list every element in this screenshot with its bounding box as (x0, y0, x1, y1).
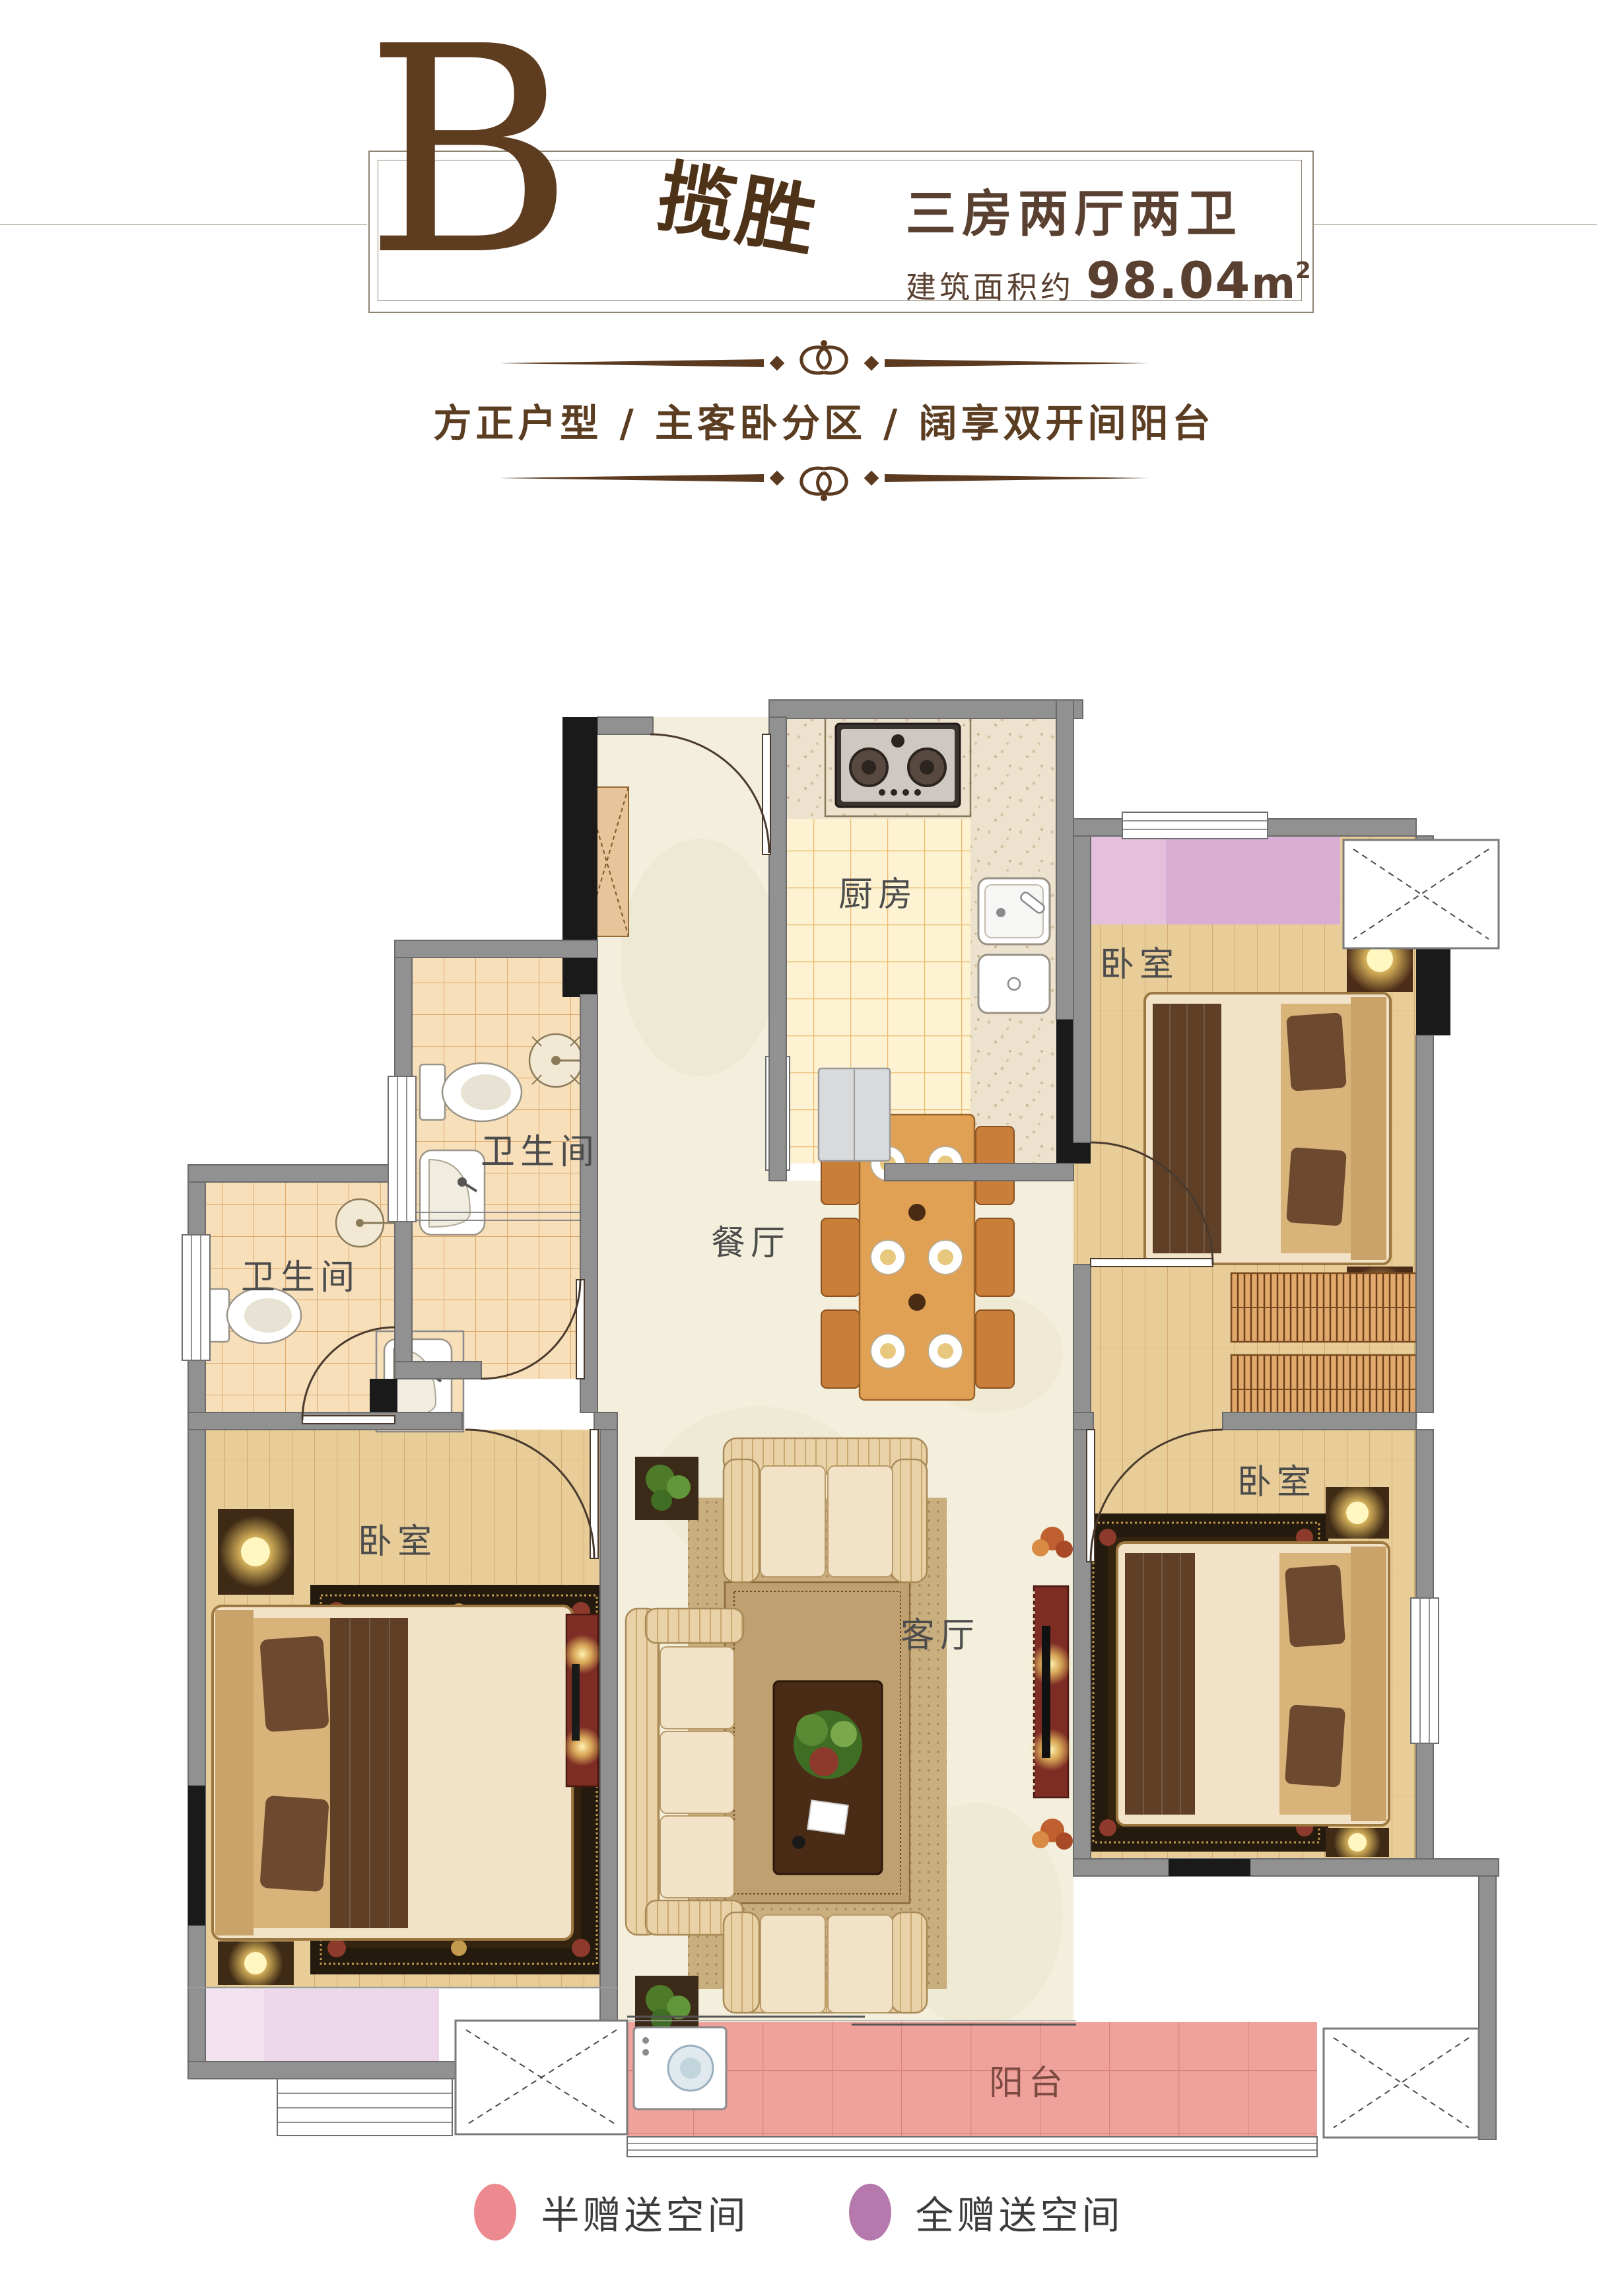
tv-cabinet-bottom-left (562, 1615, 602, 1786)
legend-item-full-gift: 全赠送空间 (848, 2183, 1124, 2241)
legend-label-full-gift: 全赠送空间 (916, 2184, 1124, 2240)
half-gift-dot-icon (473, 2183, 517, 2241)
room-label-bedroom-bottom-right: 卧室 (1237, 1463, 1316, 1502)
room-label-living: 客厅 (900, 1616, 980, 1655)
room-label-bath-upper: 卫生间 (481, 1132, 599, 1172)
room-label-kitchen: 厨房 (838, 875, 918, 915)
room-label-bath-lower: 卫生间 (241, 1258, 360, 1298)
legend-item-half-gift: 半赠送空间 (473, 2183, 749, 2241)
legend-label-half-gift: 半赠送空间 (541, 2184, 749, 2240)
full-gift-dot-icon (848, 2183, 892, 2241)
washing-machine (634, 2027, 726, 2109)
fridge (819, 1068, 890, 1161)
legend: 半赠送空间 全赠送空间 (0, 2183, 1597, 2241)
floorplan: 厨房 卧室 卫生间 卫生间 餐厅 客厅 卧室 卧室 阳台 (0, 0, 1597, 2296)
toilet-upper (420, 1063, 522, 1121)
room-label-dining: 餐厅 (711, 1224, 790, 1263)
ac-platform-top-right (1343, 840, 1499, 948)
room-label-bedroom-top-right: 卧室 (1100, 945, 1179, 985)
ac-platform-bottom-right (1324, 2029, 1479, 2138)
room-label-balcony: 阳台 (989, 2064, 1068, 2103)
floorplan-page: B 揽胜 三房两厅两卫 建筑面积约 98.04 m 2 方正户型 / 主客卧分区… (0, 0, 1597, 2296)
ac-platform-bottom-left (456, 2021, 627, 2134)
stove (825, 717, 970, 816)
floor-balcony (627, 2022, 1317, 2139)
room-label-bedroom-bottom-left: 卧室 (358, 1522, 437, 1562)
sink-upper (420, 1150, 485, 1235)
